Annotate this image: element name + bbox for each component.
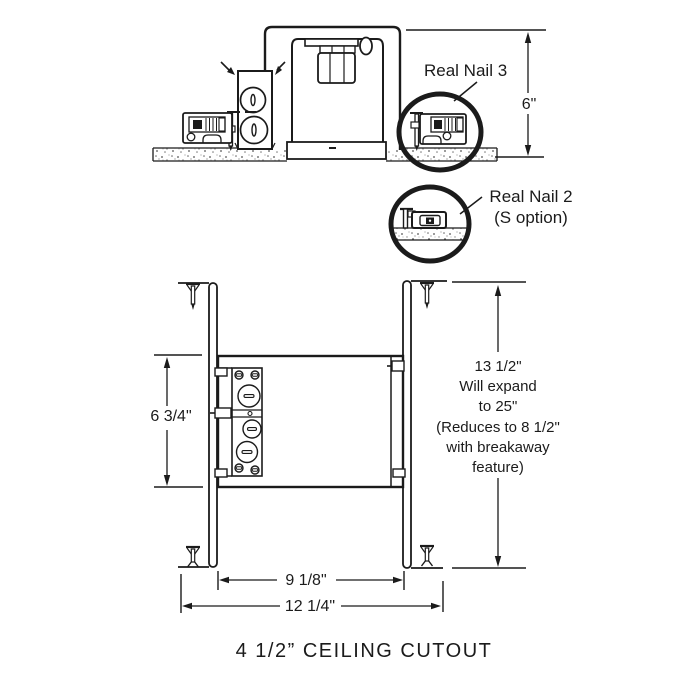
housing-plan (210, 356, 405, 487)
bar-span-dim-label: 9 1/8" (285, 572, 326, 589)
depth-dim-label: 6 3/4" (150, 408, 191, 425)
svg-text:(Reduces to 8 1/2": (Reduces to 8 1/2" (436, 419, 560, 436)
svg-text:Will expand: Will expand (459, 378, 537, 395)
hanger-bar-left (178, 283, 217, 567)
diagram-caption: 4 1/2” CEILING CUTOUT (236, 640, 493, 662)
diagram-page: Real Nail 3 6" Real Nail 2 (S option) 6 … (0, 0, 700, 700)
real-nail-2-label-line2: (S option) (494, 208, 568, 227)
real-nail-3-leader (454, 82, 477, 101)
real-nail-3-label: Real Nail 3 (424, 61, 507, 80)
real-nail-2-detail (391, 187, 482, 261)
svg-text:to 25": to 25" (479, 398, 518, 415)
overall-width-dim-label: 12 1/4" (285, 598, 335, 615)
upper-elevation-view (153, 27, 546, 170)
can-housing-side (265, 27, 400, 159)
expansion-note: 13 1/2" Will expand to 25" (Reduces to 8… (436, 358, 560, 476)
mounting-nail-top-right (420, 283, 434, 309)
svg-text:with breakaway: with breakaway (445, 439, 550, 456)
height-dim-label: 6" (522, 96, 537, 113)
mounting-nail-top-left (186, 284, 200, 310)
wire-hole (360, 38, 372, 55)
mounting-nail-bottom-left (186, 547, 200, 567)
mounting-nail-bottom-right (420, 546, 434, 566)
ceiling-cutout-diagram: Real Nail 3 6" Real Nail 2 (S option) 6 … (0, 0, 700, 700)
svg-text:feature): feature) (472, 459, 524, 476)
svg-text:13 1/2": 13 1/2" (474, 358, 521, 375)
real-nail-2-label-line1: Real Nail 2 (489, 187, 572, 206)
